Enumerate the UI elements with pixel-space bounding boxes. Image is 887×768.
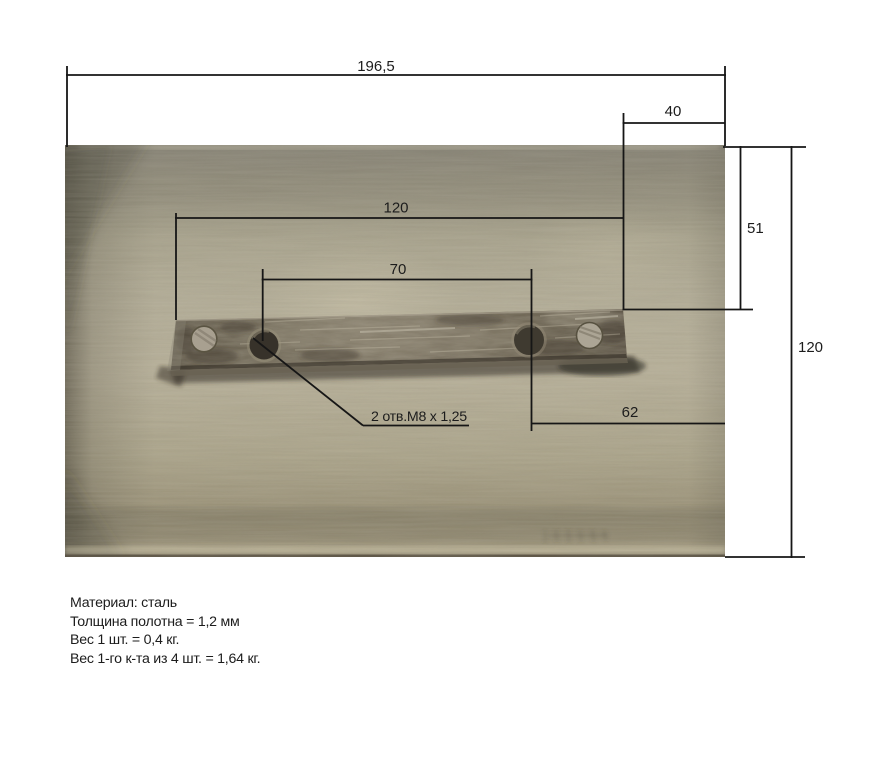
svg-text:Вес 1 шт. = 0,4 кг.: Вес 1 шт. = 0,4 кг. bbox=[70, 632, 179, 648]
svg-text:2 отв.М8 х 1,25: 2 отв.М8 х 1,25 bbox=[371, 409, 467, 425]
svg-text:Материал: сталь: Материал: сталь bbox=[70, 595, 177, 611]
svg-text:51: 51 bbox=[747, 220, 764, 237]
svg-text:40: 40 bbox=[665, 103, 682, 120]
svg-text:Вес 1-го к-та из 4 шт. = 1,64: Вес 1-го к-та из 4 шт. = 1,64 кг. bbox=[70, 651, 260, 667]
svg-text:62: 62 bbox=[622, 404, 639, 421]
svg-text:Толщина полотна = 1,2 мм: Толщина полотна = 1,2 мм bbox=[70, 614, 240, 630]
svg-text:120: 120 bbox=[798, 339, 823, 356]
svg-text:120: 120 bbox=[383, 200, 408, 217]
svg-text:196,5: 196,5 bbox=[357, 58, 395, 75]
svg-text:70: 70 bbox=[390, 261, 407, 278]
